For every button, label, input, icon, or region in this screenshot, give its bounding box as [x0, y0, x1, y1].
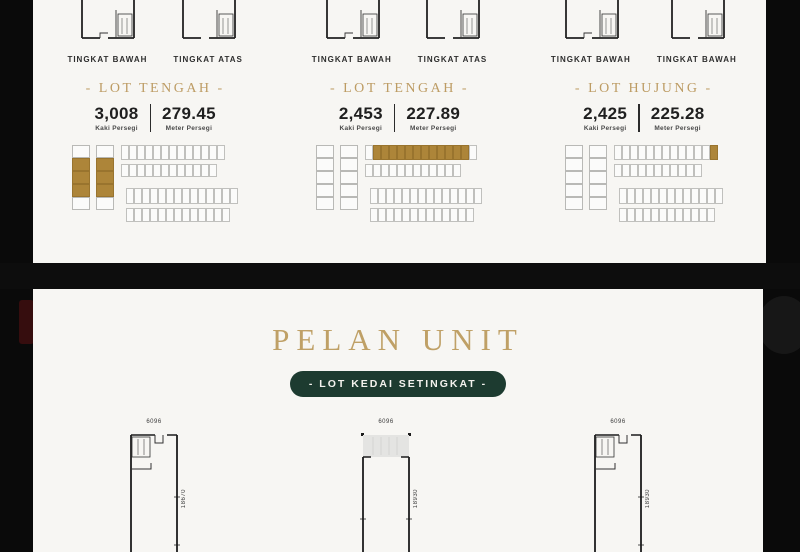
stat-divider: [150, 104, 152, 132]
keyplan-cell: [469, 145, 477, 160]
keyplan-strip: [72, 145, 90, 210]
keyplan-cell: [386, 188, 394, 204]
width-dimension: 6096: [351, 419, 421, 425]
area-stats: 2,425 Kaki Persegi 225.28 Meter Persegi: [583, 104, 704, 132]
keyplan-cell-highlighted: [72, 158, 90, 171]
keyplan-cell: [442, 188, 450, 204]
keyplan-cell: [589, 184, 607, 197]
keyplan-cell: [137, 145, 145, 160]
keyplan-cell: [445, 164, 453, 177]
keyplan-cell: [699, 188, 707, 204]
floorplan-drawing: [119, 427, 189, 552]
panel-gap-band: [0, 263, 800, 289]
keyplan-row: [121, 164, 238, 177]
keyplan-cell: [405, 164, 413, 177]
keyplan-cell-highlighted: [437, 145, 445, 160]
plan-unit: TINGKAT BAWAH: [657, 0, 737, 64]
floorplan-drawing: [351, 427, 421, 552]
keyplan-row: [614, 145, 723, 160]
keyplan-cell: [96, 197, 114, 210]
floor-label: TINGKAT ATAS: [173, 55, 242, 64]
keyplan-cell: [340, 171, 358, 184]
floorplan-drawing: [583, 427, 653, 552]
area-sqm: 227.89 Meter Persegi: [406, 104, 460, 132]
keyplan-cell: [442, 208, 450, 222]
width-dimension: 6096: [119, 419, 189, 425]
keyplan-cell: [316, 171, 334, 184]
keyplan-cell: [627, 208, 635, 222]
keyplan-cell: [394, 188, 402, 204]
keyplan-cell: [421, 164, 429, 177]
keyplan-cell: [418, 188, 426, 204]
keyplan-cell: [466, 188, 474, 204]
keyplan-row: [619, 208, 723, 222]
keyplan-cell: [365, 164, 373, 177]
keyplan-cell: [707, 188, 715, 204]
keyplan-row: [126, 208, 238, 222]
keyplan-cell: [166, 188, 174, 204]
plan-unit: TINGKAT BAWAH: [551, 0, 631, 64]
keyplan-cell: [589, 197, 607, 210]
keyplan-cell: [627, 188, 635, 204]
keyplan-cell: [386, 208, 394, 222]
keyplan-cell: [206, 188, 214, 204]
keyplan-cell: [630, 145, 638, 160]
keyplan-cell: [643, 208, 651, 222]
area-sqm-unit: Meter Persegi: [166, 125, 213, 132]
keyplan-cell: [686, 164, 694, 177]
keyplan-cell: [150, 188, 158, 204]
keyplan-rows: [121, 145, 238, 222]
lot-comparison-panel: TINGKAT BAWAH TINGKAT ATAS - LOT TENGAH …: [33, 0, 766, 263]
keyplan-cell: [458, 208, 466, 222]
keyplan-cell: [691, 208, 699, 222]
keyplan-cell: [145, 145, 153, 160]
floor-label: TINGKAT BAWAH: [312, 55, 392, 64]
unit-floorplan-left: 6096 18670: [119, 419, 203, 552]
keyplan-cell: [638, 145, 646, 160]
keyplan-cell: [565, 171, 583, 184]
keyplan-cell: [659, 208, 667, 222]
keyplan-cell: [316, 158, 334, 171]
keyplan-cell: [177, 145, 185, 160]
floorplan-pair: TINGKAT BAWAH TINGKAT ATAS: [312, 0, 487, 64]
keyplan-cell: [670, 145, 678, 160]
keyplan-cell: [209, 164, 217, 177]
keyplan-cell: [158, 208, 166, 222]
area-sqm-unit: Meter Persegi: [410, 125, 457, 132]
keyplan-cell-highlighted: [453, 145, 461, 160]
keyplan-cell: [365, 145, 373, 160]
keyplan-cell: [182, 188, 190, 204]
keyplan-row: [121, 145, 238, 160]
keyplan-cell: [193, 164, 201, 177]
keyplan-cell: [169, 145, 177, 160]
keyplan-cell: [373, 164, 381, 177]
keyplan-cell: [397, 164, 405, 177]
floorplan-drawing: [558, 0, 624, 46]
keyplan-strip: [589, 145, 607, 210]
keyplan-row: [619, 188, 723, 204]
keyplan-cell-highlighted: [429, 145, 437, 160]
keyplan-cell: [378, 188, 386, 204]
keyplan-cell: [622, 145, 630, 160]
keyplan-cell: [654, 164, 662, 177]
background-red-artifact: [19, 300, 34, 344]
keyplan-cell: [182, 208, 190, 222]
keyplan-cell: [662, 145, 670, 160]
keyplan-cell: [589, 158, 607, 171]
area-sqft: 2,425 Kaki Persegi: [583, 104, 627, 132]
keyplan-cell: [659, 188, 667, 204]
keyplan-cell: [619, 188, 627, 204]
keyplan-cell: [646, 164, 654, 177]
keyplan-cell: [153, 164, 161, 177]
keyplan-cell: [694, 164, 702, 177]
lot-title: - LOT TENGAH -: [330, 81, 469, 97]
keyplan-cell: [193, 145, 201, 160]
keyplan-cell: [174, 208, 182, 222]
area-stats: 3,008 Kaki Persegi 279.45 Meter Persegi: [94, 104, 215, 132]
lot-title: - LOT TENGAH -: [86, 81, 225, 97]
area-sqm-unit: Meter Persegi: [654, 125, 701, 132]
keyplan-cell: [214, 188, 222, 204]
background-grey-artifact: [758, 296, 800, 354]
stat-divider: [394, 104, 396, 132]
keyplan-cell: [643, 188, 651, 204]
unit-floorplan-middle: 6096 18930: [351, 419, 435, 552]
keyplan-cell-highlighted: [461, 145, 469, 160]
keyplan-cell: [429, 164, 437, 177]
floorplan-drawing: [664, 0, 730, 46]
keyplan-cell: [72, 145, 90, 158]
keyplan-cell: [134, 188, 142, 204]
pelan-unit-panel: PELAN UNIT - LOT KEDAI SETINGKAT - 6096 …: [33, 289, 763, 552]
keyplan-cell: [654, 145, 662, 160]
keyplan-strip: [96, 145, 114, 210]
plan-unit: TINGKAT ATAS: [173, 0, 242, 64]
keyplan-cell: [126, 208, 134, 222]
keyplan-cell-highlighted: [373, 145, 381, 160]
keyplan-cell: [145, 164, 153, 177]
keyplan-cell: [370, 188, 378, 204]
keyplan-cell: [683, 208, 691, 222]
keyplan-cell: [458, 188, 466, 204]
floor-label: TINGKAT BAWAH: [551, 55, 631, 64]
keyplan-cell: [667, 188, 675, 204]
keyplan-cell: [630, 164, 638, 177]
lot-sections: TINGKAT BAWAH TINGKAT ATAS - LOT TENGAH …: [33, 0, 766, 263]
keyplan-cell: [707, 208, 715, 222]
keyplan-cell: [589, 145, 607, 158]
width-dimension: 6096: [583, 419, 653, 425]
keyplan-cell: [683, 188, 691, 204]
floorplan-drawing: [74, 0, 140, 46]
keyplan-cell: [402, 188, 410, 204]
keyplan-strips: [72, 145, 114, 210]
keyplan-cell: [565, 184, 583, 197]
keyplan-row: [365, 164, 482, 177]
keyplan-cell: [614, 164, 622, 177]
keyplan-cell: [667, 208, 675, 222]
plan-unit: TINGKAT BAWAH: [312, 0, 392, 64]
keyplan-cell: [638, 164, 646, 177]
keyplan-cell: [691, 188, 699, 204]
keyplan-cell: [161, 145, 169, 160]
keyplan-cell: [381, 164, 389, 177]
height-dimension: 18930: [645, 489, 651, 508]
keyplan-cell: [169, 164, 177, 177]
keyplan-cell: [166, 208, 174, 222]
keyplan-cell-highlighted: [421, 145, 429, 160]
floorplan-drawing: [419, 0, 485, 46]
keyplan-cell: [217, 145, 225, 160]
area-sqft: 2,453 Kaki Persegi: [339, 104, 383, 132]
keyplan-cell: [340, 145, 358, 158]
floorplan-drawing: [319, 0, 385, 46]
keyplan-cell: [651, 208, 659, 222]
keyplan-cell: [214, 208, 222, 222]
keyplan-row: [614, 164, 723, 177]
keyplan-cell: [206, 208, 214, 222]
keyplan-cell: [699, 208, 707, 222]
keyplan-cell-highlighted: [96, 171, 114, 184]
keyplan-cell: [201, 145, 209, 160]
stat-divider: [638, 104, 640, 132]
keyplan-cell: [614, 145, 622, 160]
keyplan-cell-highlighted: [710, 145, 718, 160]
keyplan-cell: [450, 208, 458, 222]
keyplan-cell: [316, 145, 334, 158]
lot-title: - LOT HUJUNG -: [575, 81, 713, 97]
keyplan-cell: [161, 164, 169, 177]
keyplan-row: [370, 188, 482, 204]
keyplan-cell: [121, 164, 129, 177]
area-sqft: 3,008 Kaki Persegi: [94, 104, 138, 132]
keyplan-cell: [185, 164, 193, 177]
keyplan-cell: [389, 164, 397, 177]
keyplan-cell: [418, 208, 426, 222]
keyplan-cell: [190, 208, 198, 222]
keyplan-cell: [126, 188, 134, 204]
keyplan-row: [126, 188, 238, 204]
keyplan-cell: [222, 208, 230, 222]
keyplan-cell: [340, 158, 358, 171]
floorplan-pair: TINGKAT BAWAH TINGKAT ATAS: [67, 0, 242, 64]
keyplan-cell-highlighted: [72, 171, 90, 184]
keyplan-row: [365, 145, 482, 160]
keyplan-cell: [158, 188, 166, 204]
area-sqm: 279.45 Meter Persegi: [162, 104, 216, 132]
keyplan-strips: [316, 145, 358, 210]
keyplan-cell-highlighted: [389, 145, 397, 160]
keyplan-cell: [153, 145, 161, 160]
keyplan-cell: [340, 197, 358, 210]
keyplan-strips: [565, 145, 607, 210]
keyplan-strip: [316, 145, 334, 210]
keyplan-cell: [646, 145, 654, 160]
keyplan-cell-highlighted: [397, 145, 405, 160]
keyplan-cell: [378, 208, 386, 222]
keyplan-cell: [675, 188, 683, 204]
area-sqm-value: 227.89: [406, 104, 460, 124]
keyplan-cell: [437, 164, 445, 177]
keyplan-cell: [675, 208, 683, 222]
keyplan-cell: [142, 188, 150, 204]
keyplan-cell-highlighted: [96, 158, 114, 171]
section-lot-tengah-1: TINGKAT BAWAH TINGKAT ATAS - LOT TENGAH …: [33, 0, 277, 263]
section-lot-hujung: TINGKAT BAWAH TINGKAT BAWAH - LOT HUJUNG…: [522, 0, 766, 263]
keyplan-rows: [614, 145, 723, 222]
floor-label: TINGKAT BAWAH: [657, 55, 737, 64]
area-sqm: 225.28 Meter Persegi: [651, 104, 705, 132]
keyplan-cell-highlighted: [445, 145, 453, 160]
keyplan-cell: [410, 188, 418, 204]
keyplan-cell: [466, 208, 474, 222]
keyplan-cell: [142, 208, 150, 222]
area-sqft-unit: Kaki Persegi: [95, 125, 138, 132]
unit-floorplan-right: 6096 18930: [583, 419, 667, 552]
plan-unit: TINGKAT ATAS: [418, 0, 487, 64]
height-dimension: 18670: [181, 489, 187, 508]
keyplan-cell: [635, 188, 643, 204]
area-sqft-value: 2,425: [583, 104, 627, 124]
area-sqft-value: 2,453: [339, 104, 383, 124]
keyplan-cell: [670, 164, 678, 177]
plan-unit: TINGKAT BAWAH: [67, 0, 147, 64]
keyplan-cell: [198, 208, 206, 222]
keyplan-cell: [222, 188, 230, 204]
lot-kedai-setingkat-button[interactable]: - LOT KEDAI SETINGKAT -: [290, 371, 506, 397]
keyplan-cell: [340, 184, 358, 197]
keyplan-cell: [201, 164, 209, 177]
keyplan-cell: [678, 145, 686, 160]
keyplan-cell: [715, 188, 723, 204]
floorplan-drawing: [175, 0, 241, 46]
area-sqft-value: 3,008: [94, 104, 138, 124]
keyplan-strip: [565, 145, 583, 210]
keyplan-cell: [96, 145, 114, 158]
keyplan-cell-highlighted: [413, 145, 421, 160]
unit-floorplans-row: 6096 18670 6096: [33, 397, 763, 552]
keyplan-cell: [121, 145, 129, 160]
area-sqm-value: 225.28: [651, 104, 705, 124]
keyplan-cell: [134, 208, 142, 222]
keyplan-cell: [702, 145, 710, 160]
keyplan-strip: [340, 145, 358, 210]
keyplan-cell-highlighted: [72, 184, 90, 197]
keyplan-cell: [150, 208, 158, 222]
keyplan-cell: [370, 208, 378, 222]
keyplan-row: [370, 208, 482, 222]
keyplan-cell: [394, 208, 402, 222]
keyplan-cell: [198, 188, 206, 204]
area-sqft-unit: Kaki Persegi: [584, 125, 627, 132]
keyplan-cell: [402, 208, 410, 222]
keyplan-cell: [694, 145, 702, 160]
height-dimension: 18930: [413, 489, 419, 508]
keyplan-cell: [129, 145, 137, 160]
keyplan-rows: [365, 145, 482, 222]
keyplan-cell: [190, 188, 198, 204]
keyplan-cell: [678, 164, 686, 177]
keyplan-cell: [565, 197, 583, 210]
section-lot-tengah-2: TINGKAT BAWAH TINGKAT ATAS - LOT TENGAH …: [277, 0, 521, 263]
keyplan-cell: [622, 164, 630, 177]
keyplan-cell: [635, 208, 643, 222]
keyplan-cell: [413, 164, 421, 177]
keyplan-cell: [619, 208, 627, 222]
keyplan-cell: [316, 197, 334, 210]
site-keyplan: [72, 145, 238, 222]
keyplan-cell: [410, 208, 418, 222]
keyplan-cell: [185, 145, 193, 160]
keyplan-cell: [662, 164, 670, 177]
keyplan-cell: [177, 164, 185, 177]
keyplan-cell: [316, 184, 334, 197]
keyplan-cell: [565, 158, 583, 171]
keyplan-cell: [453, 164, 461, 177]
area-sqm-value: 279.45: [162, 104, 216, 124]
keyplan-cell: [209, 145, 217, 160]
area-stats: 2,453 Kaki Persegi 227.89 Meter Persegi: [339, 104, 460, 132]
keyplan-cell: [426, 208, 434, 222]
keyplan-cell: [129, 164, 137, 177]
keyplan-cell: [474, 188, 482, 204]
keyplan-cell: [174, 188, 182, 204]
floor-label: TINGKAT ATAS: [418, 55, 487, 64]
keyplan-cell: [450, 188, 458, 204]
keyplan-cell: [426, 188, 434, 204]
page-title: PELAN UNIT: [33, 322, 763, 358]
keyplan-cell-highlighted: [405, 145, 413, 160]
keyplan-cell: [651, 188, 659, 204]
site-keyplan: [316, 145, 482, 222]
keyplan-cell: [589, 171, 607, 184]
keyplan-cell: [434, 208, 442, 222]
keyplan-cell-highlighted: [381, 145, 389, 160]
keyplan-cell-highlighted: [96, 184, 114, 197]
keyplan-cell: [72, 197, 90, 210]
floorplan-pair: TINGKAT BAWAH TINGKAT BAWAH: [551, 0, 737, 64]
keyplan-cell: [434, 188, 442, 204]
keyplan-cell: [686, 145, 694, 160]
keyplan-cell: [565, 145, 583, 158]
site-keyplan: [565, 145, 723, 222]
keyplan-cell: [137, 164, 145, 177]
area-sqft-unit: Kaki Persegi: [340, 125, 383, 132]
button-row: - LOT KEDAI SETINGKAT -: [33, 371, 763, 397]
keyplan-cell: [230, 188, 238, 204]
floor-label: TINGKAT BAWAH: [67, 55, 147, 64]
